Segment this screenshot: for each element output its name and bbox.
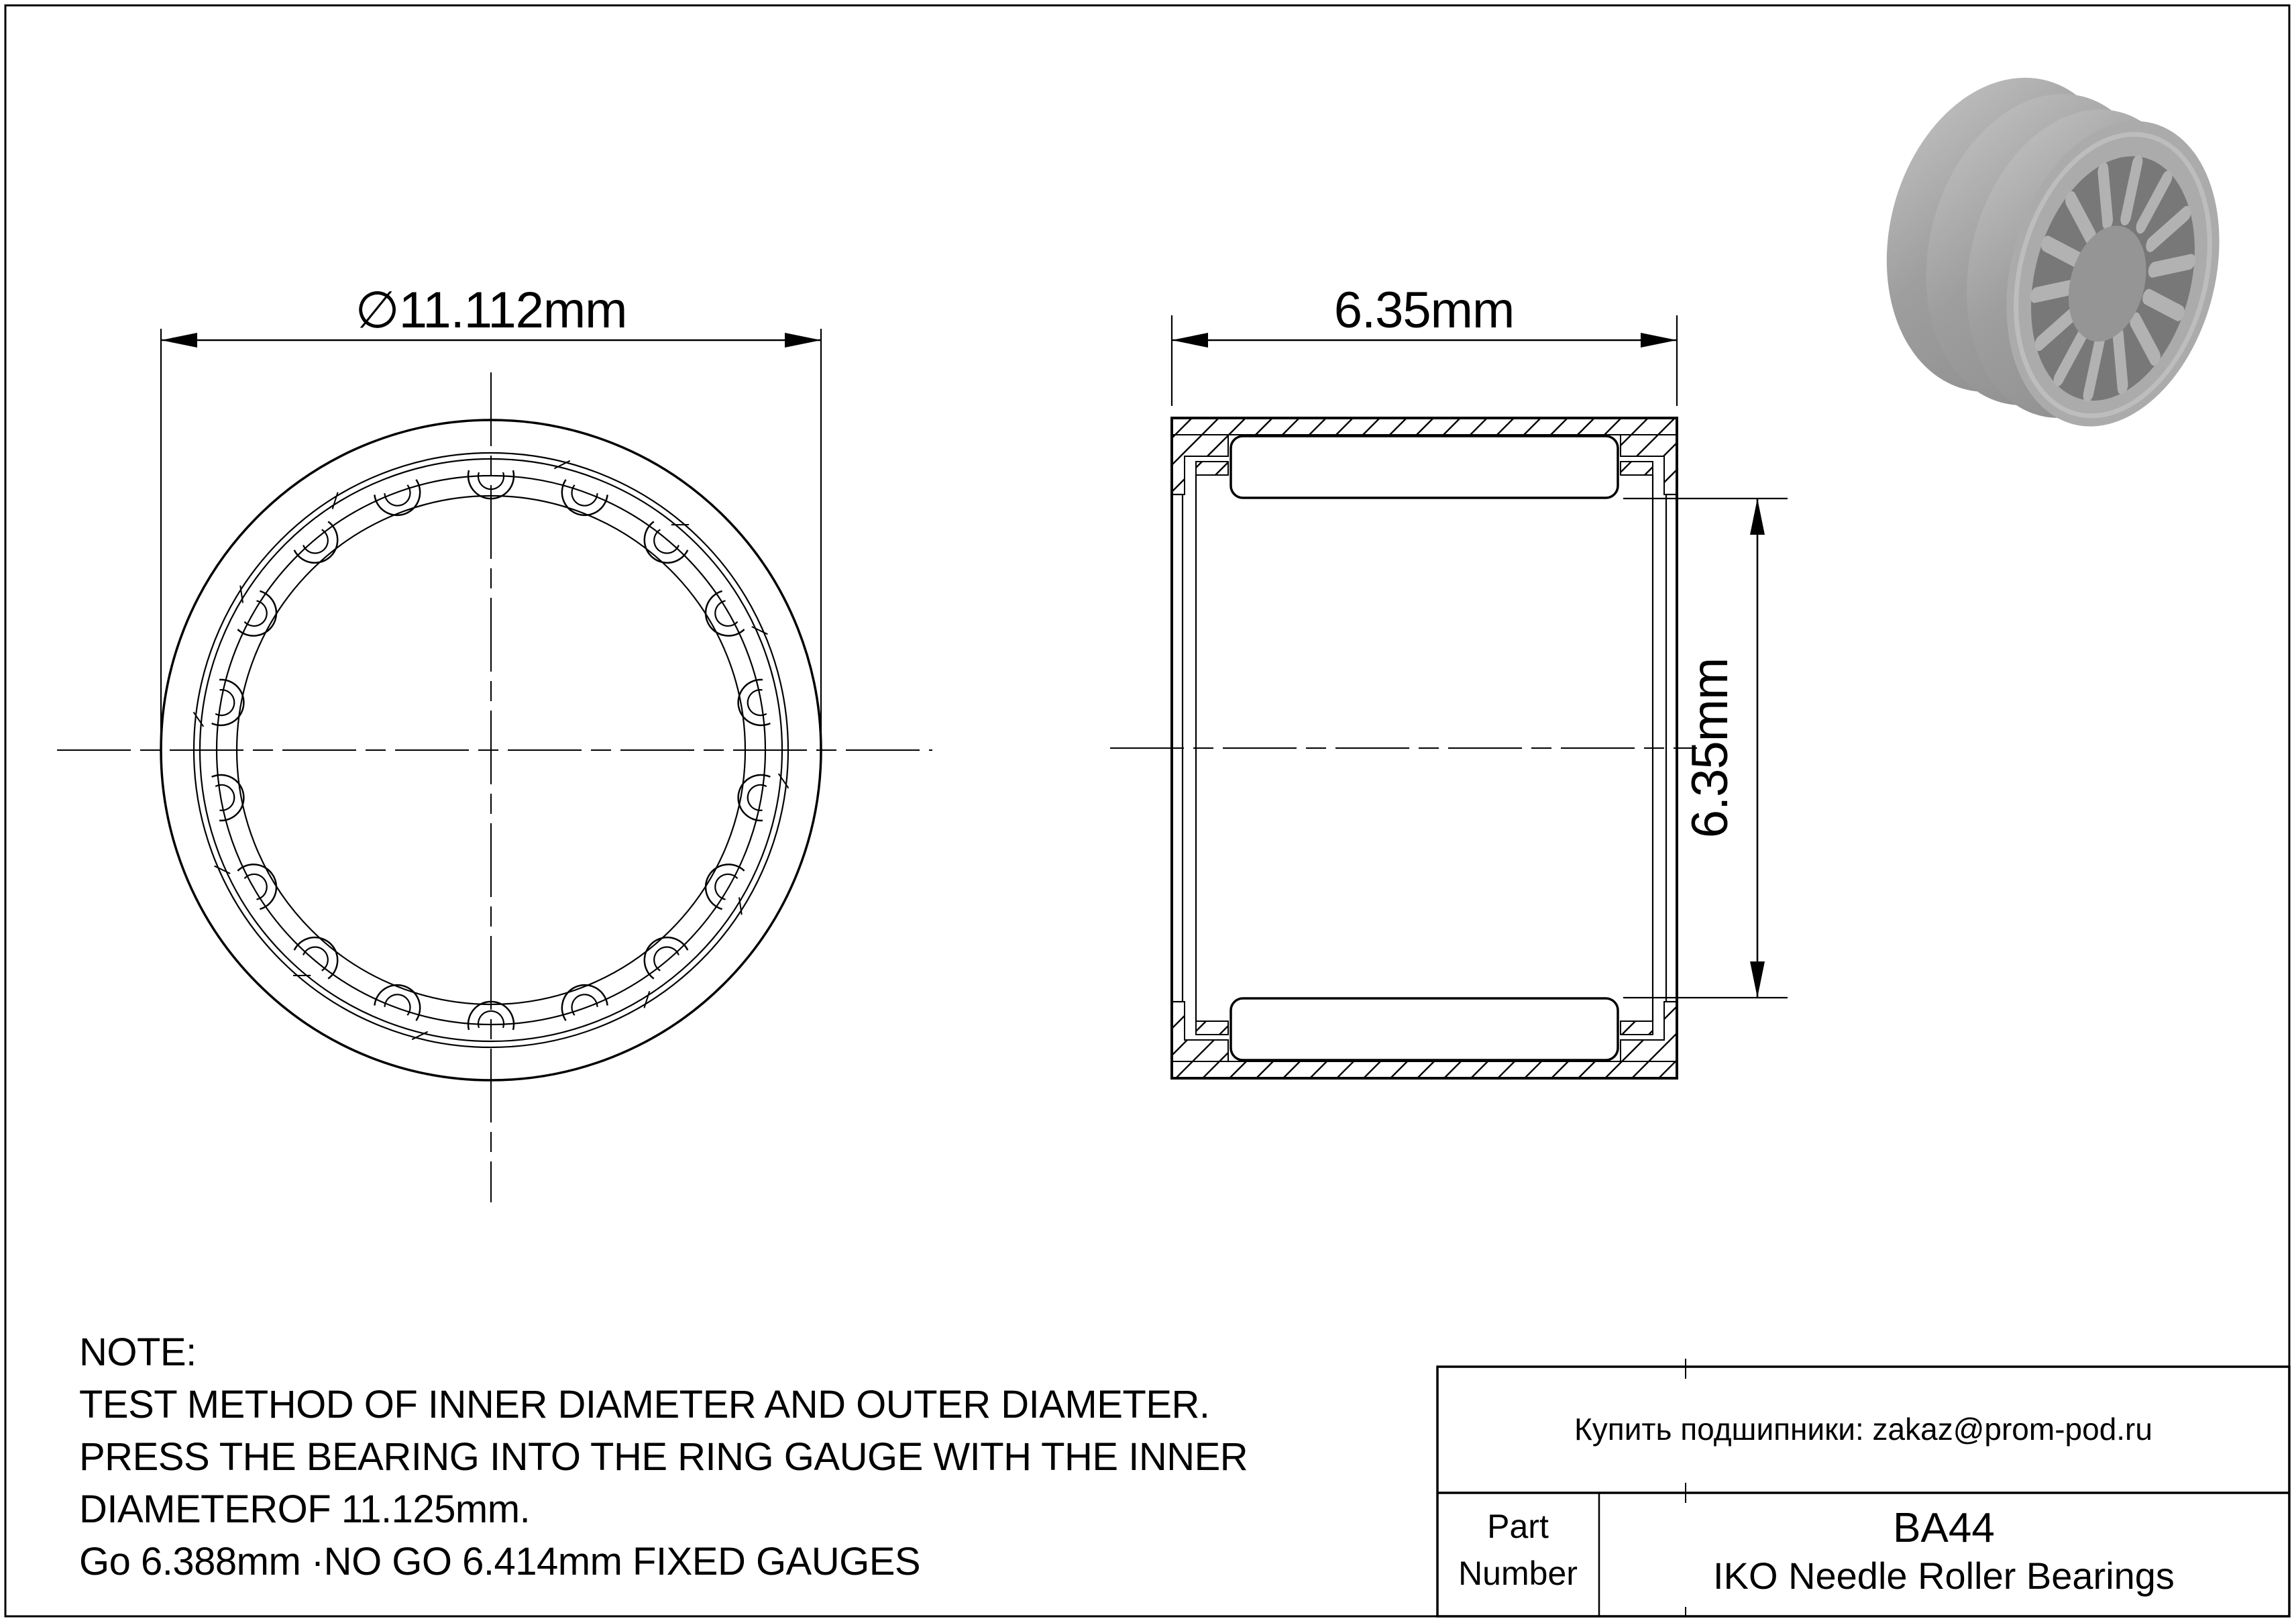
front-roller bbox=[698, 590, 745, 644]
part-number-label-line2: Number bbox=[1458, 1555, 1578, 1592]
section-cage-rim-bottom-right bbox=[1621, 1021, 1653, 1035]
note-title: NOTE: bbox=[79, 1330, 197, 1374]
note-line-3: DIAMETEROF 11.125mm. bbox=[79, 1487, 530, 1531]
section-shell-bottom bbox=[1172, 1061, 1677, 1078]
section-roller-top bbox=[1231, 436, 1618, 498]
front-roller bbox=[734, 772, 770, 821]
front-roller bbox=[374, 480, 426, 522]
front-dim-arrow-right bbox=[785, 333, 821, 348]
front-roller bbox=[555, 979, 608, 1021]
section-view: 6.35mm 6.35mm bbox=[1110, 282, 1788, 1078]
front-view: ∅11.112mm bbox=[57, 282, 932, 1202]
part-description: IKO Needle Roller Bearings bbox=[1713, 1555, 2175, 1597]
front-roller bbox=[211, 679, 247, 729]
front-shell-tick bbox=[777, 774, 790, 788]
title-block: Купить подшипники: zakaz@prom-pod.ru Par… bbox=[1437, 1359, 2289, 1616]
front-dim-arrow-left bbox=[161, 333, 197, 348]
section-cage-rim-bottom-left bbox=[1196, 1021, 1228, 1035]
section-shell-top bbox=[1172, 418, 1677, 435]
front-shell-tick bbox=[192, 712, 205, 727]
section-bore-arrow-top bbox=[1750, 499, 1765, 535]
part-number-label-line1: Part bbox=[1487, 1508, 1549, 1545]
front-roller bbox=[734, 679, 770, 729]
section-roller-bottom bbox=[1231, 998, 1618, 1060]
front-shell-tick bbox=[293, 967, 311, 984]
section-cage-rim-top-right bbox=[1621, 462, 1653, 475]
section-bore-label: 6.35mm bbox=[1682, 658, 1739, 839]
part-number-value: BA44 bbox=[1893, 1505, 1995, 1551]
front-roller bbox=[698, 856, 745, 910]
front-roller bbox=[237, 856, 285, 910]
technical-drawing: ∅11.112mm bbox=[0, 0, 2296, 1623]
section-width-arrow-left bbox=[1172, 333, 1208, 348]
section-cage-rim-top-left bbox=[1196, 462, 1228, 475]
drawing-sheet: ∅11.112mm bbox=[0, 0, 2296, 1623]
front-shell-tick bbox=[671, 516, 689, 533]
front-diameter-label: ∅11.112mm bbox=[356, 282, 627, 339]
section-width-dimension: 6.35mm bbox=[1172, 282, 1677, 406]
section-width-label: 6.35mm bbox=[1334, 282, 1515, 339]
front-roller bbox=[237, 590, 285, 644]
section-width-arrow-right bbox=[1641, 333, 1677, 348]
product-photo bbox=[1853, 51, 2252, 451]
note-line-1: TEST METHOD OF INNER DIAMETER AND OUTER … bbox=[79, 1383, 1210, 1426]
note-block: NOTE: TEST METHOD OF INNER DIAMETER AND … bbox=[79, 1330, 1248, 1583]
note-line-2: PRESS THE BEARING INTO THE RING GAUGE WI… bbox=[79, 1435, 1248, 1479]
note-line-4: Go 6.388mm ·NO GO 6.414mm FIXED GAUGES bbox=[79, 1540, 920, 1583]
supplier-note: Купить подшипники: zakaz@prom-pod.ru bbox=[1574, 1412, 2152, 1447]
front-roller bbox=[211, 772, 247, 821]
section-bore-arrow-bottom bbox=[1750, 961, 1765, 998]
front-roller bbox=[374, 979, 426, 1021]
front-roller bbox=[555, 480, 608, 522]
